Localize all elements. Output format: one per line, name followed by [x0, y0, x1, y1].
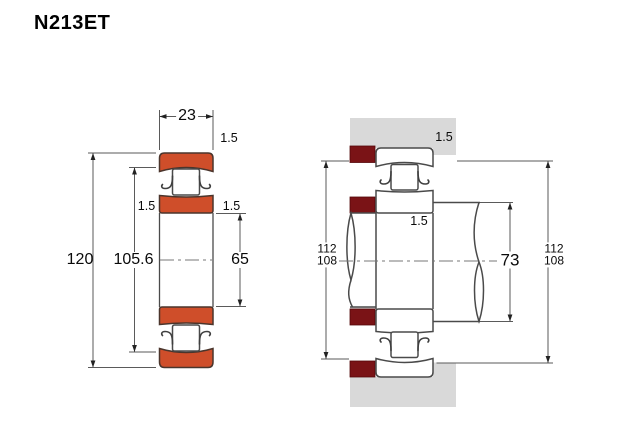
dim-shaft-shoulder: 73 — [499, 252, 522, 269]
shaft-break-icon — [347, 213, 355, 280]
dim-outer-diameter: 120 — [67, 252, 94, 268]
technical-drawing-page: N213ET — [0, 0, 640, 440]
shaft-break-icon — [474, 203, 479, 263]
dim-abutment-right: 112 108 — [542, 242, 566, 267]
inner-ring-bottom — [160, 307, 214, 325]
dim-chamfer-left: 1.5 — [138, 200, 155, 213]
dim-raceway-diameter: 105.6 — [111, 252, 155, 268]
inner-ring-top — [160, 196, 214, 214]
locating-ring-inner-top — [350, 197, 375, 213]
dim-bore-diameter: 65 — [229, 252, 251, 268]
roller-bottom — [173, 325, 200, 351]
dim-inner-ring-chamfer: 1.5 — [408, 215, 429, 228]
dim-abutment-left: 112 108 — [315, 242, 339, 267]
roller-top — [173, 169, 200, 195]
dim-chamfer-right: 1.5 — [223, 200, 240, 213]
roller-bottom — [391, 332, 418, 358]
shaft-break-icon — [475, 262, 484, 322]
roller-top — [391, 165, 418, 191]
inner-ring-bottom — [376, 309, 433, 333]
dim-housing-chamfer: 1.5 — [435, 131, 452, 144]
locating-ring-inner-bottom — [350, 309, 375, 325]
technical-drawing-canvas — [0, 0, 640, 440]
dim-width: 23 — [176, 108, 198, 124]
inner-ring-top — [376, 191, 433, 214]
locating-ring-outer-bottom — [350, 361, 375, 377]
dim-abutment-right-min: 108 — [544, 255, 564, 268]
dim-abutment-left-min: 108 — [317, 255, 337, 268]
dim-abutment-right-max: 112 — [544, 242, 563, 255]
locating-ring-outer-top — [350, 146, 375, 163]
dim-chamfer-top: 1.5 — [220, 132, 237, 145]
dim-abutment-left-max: 112 — [317, 242, 336, 255]
extension-lines — [88, 110, 553, 368]
